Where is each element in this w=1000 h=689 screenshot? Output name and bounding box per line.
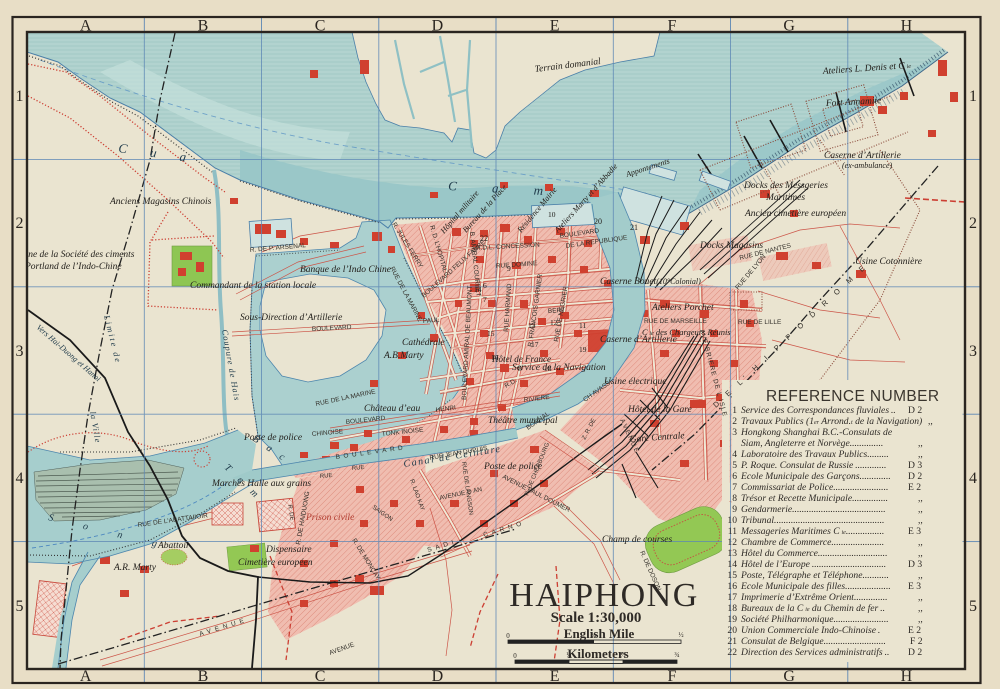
svg-text:BERT: BERT	[548, 307, 566, 315]
svg-text:B: B	[198, 18, 209, 35]
svg-text:Tribunal......................: Tribunal................................…	[741, 515, 884, 526]
svg-text:E 3: E 3	[908, 581, 921, 592]
svg-text:16: 16	[727, 581, 737, 592]
svg-text:Banque de l’Indo Chine: Banque de l’Indo Chine	[300, 265, 391, 275]
svg-text:Maritimes: Maritimes	[765, 193, 805, 203]
svg-text:Cathédrale: Cathédrale	[402, 338, 445, 348]
svg-text:Docks des Messgeries: Docks des Messgeries	[743, 181, 828, 191]
svg-text:Ateliers Porchet: Ateliers Porchet	[651, 303, 714, 313]
svg-text:19: 19	[727, 614, 737, 625]
svg-text:Marchés Halle aux grains: Marchés Halle aux grains	[211, 479, 311, 489]
svg-text:D 3: D 3	[908, 559, 922, 570]
svg-text:1: 1	[732, 405, 737, 416]
svg-text:C: C	[315, 668, 326, 685]
svg-text:3: 3	[16, 343, 24, 360]
svg-text:D: D	[432, 18, 444, 35]
svg-text:3: 3	[969, 343, 977, 360]
svg-text:Chambre de Commerce...........: Chambre de Commerce.....................…	[741, 537, 884, 548]
svg-text:Commandant de la station local: Commandant de la station locale	[190, 281, 316, 291]
svg-text:Château d’eau: Château d’eau	[364, 404, 420, 414]
svg-text:G: G	[783, 668, 795, 685]
svg-text:10: 10	[548, 210, 556, 219]
svg-text:Ancien cimetière européen: Ancien cimetière européen	[744, 209, 846, 219]
svg-text:Imprimerie d’Extrême Orient...: Imprimerie d’Extrême Orient.............…	[740, 592, 888, 603]
svg-text:H: H	[901, 18, 913, 35]
svg-text:5: 5	[969, 598, 977, 615]
svg-text:5: 5	[732, 460, 737, 471]
svg-text:Travaux Publics (1er Arrond.t: Travaux Publics (1er Arrond.t de la Navi…	[741, 416, 922, 427]
svg-text:Ecole Municipale des filles...: Ecole Municipale des filles.............…	[740, 581, 891, 592]
svg-text:Usine électrique: Usine électrique	[604, 377, 667, 387]
svg-text:,,: ,,	[918, 592, 923, 603]
svg-text:15: 15	[727, 570, 737, 581]
svg-text:12: 12	[727, 537, 737, 548]
svg-text:17: 17	[727, 592, 737, 603]
svg-text:4: 4	[16, 470, 24, 487]
svg-text:13: 13	[727, 548, 737, 559]
svg-text:Commissariat de Police........: Commissariat de Police..................…	[741, 482, 888, 493]
svg-text:,,: ,,	[918, 449, 923, 460]
svg-text:,,: ,,	[918, 515, 923, 526]
svg-text:F 2: F 2	[910, 636, 923, 647]
svg-text:PAUL: PAUL	[423, 317, 440, 325]
svg-text:Caserne d’Artillerie: Caserne d’Artillerie	[824, 151, 901, 161]
svg-text:HAIPHONG: HAIPHONG	[509, 577, 699, 614]
svg-text:B: B	[198, 668, 209, 685]
svg-text:E 3: E 3	[908, 526, 921, 537]
svg-text:E: E	[550, 668, 560, 685]
svg-text:½: ½	[678, 631, 683, 639]
svg-text:C: C	[315, 18, 326, 35]
svg-text:5: 5	[16, 598, 24, 615]
svg-text:9: 9	[732, 504, 737, 515]
svg-text:6: 6	[483, 281, 487, 290]
svg-text:8: 8	[732, 493, 737, 504]
svg-text:10: 10	[727, 515, 737, 526]
svg-text:¼: ¼	[591, 631, 596, 639]
svg-text:Hongkong Shanghai B.C.-Consula: Hongkong Shanghai B.C.-Consulats de	[740, 427, 893, 438]
svg-text:D 2: D 2	[908, 405, 922, 416]
svg-text:Gendarmerie...................: Gendarmerie.............................…	[741, 504, 886, 515]
svg-text:2: 2	[732, 416, 737, 427]
svg-text:20: 20	[594, 217, 602, 226]
svg-text:Ecole Municipale des Garçons..: Ecole Municipale des Garçons............…	[740, 471, 891, 482]
svg-text:Bureaux de la C ie du Chemin d: Bureaux de la C ie du Chemin de fer ..	[741, 603, 885, 614]
svg-text:6: 6	[732, 471, 737, 482]
svg-text:Siam, Angleterre et Norvège...: Siam, Angleterre et Norvège.............…	[741, 438, 883, 449]
svg-text:Cimetière européen: Cimetière européen	[238, 558, 313, 568]
svg-text:Consulat de Belgique..........: Consulat de Belgique....................…	[741, 636, 886, 647]
svg-text:D 2: D 2	[908, 471, 922, 482]
svg-text:2: 2	[16, 215, 24, 232]
svg-text:3: 3	[732, 427, 737, 438]
svg-text:Hôtel du Commerce.............: Hôtel du Commerce.......................…	[740, 548, 887, 559]
svg-text:4: 4	[969, 470, 977, 487]
svg-text:Direction des Services adminis: Direction des Services administratifs ..	[740, 647, 889, 658]
svg-text:4: 4	[732, 449, 737, 460]
svg-text:RUE: RUE	[320, 473, 333, 480]
svg-text:F: F	[667, 668, 676, 685]
svg-text:A.R. Marty: A.R. Marty	[113, 563, 157, 573]
svg-text:G: G	[783, 18, 795, 35]
svg-text:Portland de l’Indo-Chine: Portland de l’Indo-Chine	[24, 262, 122, 272]
svg-text:11: 11	[728, 526, 737, 537]
svg-text:(ex-ambulance): (ex-ambulance)	[842, 161, 893, 170]
svg-text:,,: ,,	[918, 438, 923, 449]
svg-text:Prison civile: Prison civile	[305, 513, 354, 523]
svg-text:Sous-Direction d’Artillerie: Sous-Direction d’Artillerie	[240, 313, 342, 323]
svg-text:D 2: D 2	[908, 647, 922, 658]
svg-text:21: 21	[630, 223, 638, 232]
svg-text:14: 14	[727, 559, 737, 570]
svg-text:Scale 1:30,000: Scale 1:30,000	[551, 610, 642, 626]
svg-text:11: 11	[579, 321, 586, 330]
svg-text:Caserne Bouet(10°Colonial): Caserne Bouet(10°Colonial)	[600, 277, 701, 287]
svg-text:H: H	[901, 668, 913, 685]
svg-text:15: 15	[487, 329, 495, 338]
svg-text:RUE: RUE	[352, 465, 365, 472]
svg-text:,,: ,,	[918, 603, 923, 614]
svg-text:English Mile: English Mile	[564, 626, 635, 641]
svg-text:P. Roque. Consulat de Russie .: P. Roque. Consulat de Russie ...........…	[740, 460, 886, 471]
svg-text:22: 22	[727, 647, 737, 658]
svg-text:Trésor et Recette Municipale..: Trésor et Recette Municipale............…	[741, 493, 888, 504]
svg-text:19: 19	[579, 345, 587, 354]
svg-text:Service des Correspondances fl: Service des Correspondances fluviales ..	[741, 405, 896, 416]
svg-text:Anciens Magasins Chinois: Anciens Magasins Chinois	[109, 197, 212, 207]
svg-text:Usine de la Société des ciment: Usine de la Société des ciments	[15, 250, 135, 260]
svg-text:½: ½	[620, 651, 625, 659]
svg-text:A.B.Marty: A.B.Marty	[383, 351, 424, 361]
svg-text:0: 0	[513, 652, 517, 660]
svg-text:D 3: D 3	[908, 460, 922, 471]
svg-text:Laboratoire des Travaux Public: Laboratoire des Travaux Publics.........	[740, 449, 889, 460]
svg-text:¼: ¼	[566, 651, 571, 659]
svg-text:7: 7	[732, 482, 737, 493]
svg-text:,,: ,,	[918, 570, 923, 581]
svg-text:RUE DE LILLE: RUE DE LILLE	[738, 319, 782, 326]
svg-text:Messageries Maritimes C ie....: Messageries Maritimes C ie..............…	[740, 526, 884, 537]
svg-text:Hôtel de France: Hôtel de France	[491, 354, 551, 364]
svg-text:A: A	[80, 668, 92, 685]
svg-text:Société Philharmonique........: Société Philharmonique..................…	[741, 614, 889, 625]
svg-text:Service de la Navigation: Service de la Navigation	[512, 363, 606, 373]
svg-text:Hôtel de la Gare: Hôtel de la Gare	[627, 405, 692, 415]
svg-text:,,: ,,	[918, 537, 923, 548]
svg-text:,,: ,,	[918, 493, 923, 504]
svg-text:Caserne d’Artillerie: Caserne d’Artillerie	[600, 335, 677, 345]
svg-text:F: F	[667, 18, 676, 35]
svg-text:2: 2	[969, 215, 977, 232]
svg-text:,,: ,,	[918, 504, 923, 515]
svg-text:REFERENCE NUMBER: REFERENCE NUMBER	[766, 388, 939, 405]
svg-text:7: 7	[483, 295, 487, 304]
svg-text:1: 1	[969, 88, 977, 105]
svg-text:,,: ,,	[928, 416, 933, 427]
svg-text:Union Commerciale Indo-Chinois: Union Commerciale Indo-Chinoise .	[741, 625, 880, 636]
svg-text:Dispensaire: Dispensaire	[265, 545, 312, 555]
svg-text:0: 0	[506, 632, 510, 640]
svg-text:18: 18	[727, 603, 737, 614]
svg-text:1: 1	[16, 88, 24, 105]
svg-text:E: E	[550, 18, 560, 35]
svg-text:E 2: E 2	[908, 482, 921, 493]
svg-text:Hôtel de l’Europe ............: Hôtel de l’Europe ......................…	[740, 559, 886, 570]
svg-text:Docks Magasins: Docks Magasins	[699, 241, 763, 251]
svg-text:RUE DE MARSEILLE: RUE DE MARSEILLE	[644, 318, 708, 325]
svg-text:A: A	[80, 18, 92, 35]
svg-text:,,: ,,	[918, 548, 923, 559]
svg-text:20: 20	[727, 625, 737, 636]
svg-text:D: D	[432, 668, 444, 685]
svg-text:,,: ,,	[918, 614, 923, 625]
svg-text:Poste, Télégraphe et Téléphone: Poste, Télégraphe et Téléphone..........…	[740, 570, 889, 581]
svg-text:Champ de courses: Champ de courses	[602, 535, 672, 545]
svg-text:¾: ¾	[674, 651, 679, 659]
svg-text:21: 21	[727, 636, 737, 647]
svg-text:E 2: E 2	[908, 625, 921, 636]
